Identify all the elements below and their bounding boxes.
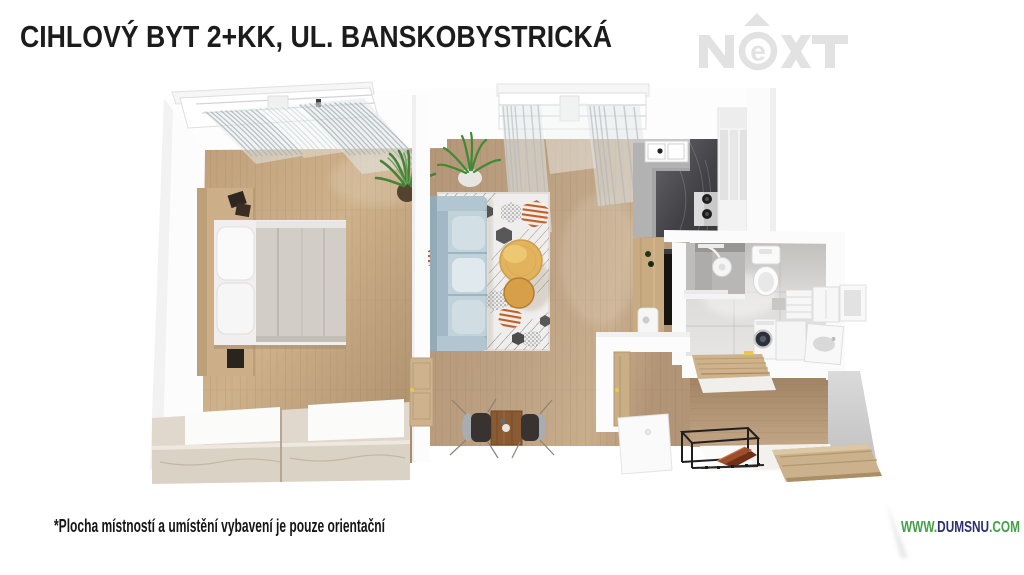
svg-text:WWW.DUMSNU.COM: WWW.DUMSNU.COM — [901, 519, 1020, 536]
svg-text:*Plocha místností a umístění v: *Plocha místností a umístění vybavení je… — [54, 515, 386, 536]
svg-text:CIHLOVÝ BYT 2+KK, UL. BANSKOBY: CIHLOVÝ BYT 2+KK, UL. BANSKOBYSTRICKÁ — [20, 19, 612, 54]
svg-text:e: e — [750, 36, 766, 67]
